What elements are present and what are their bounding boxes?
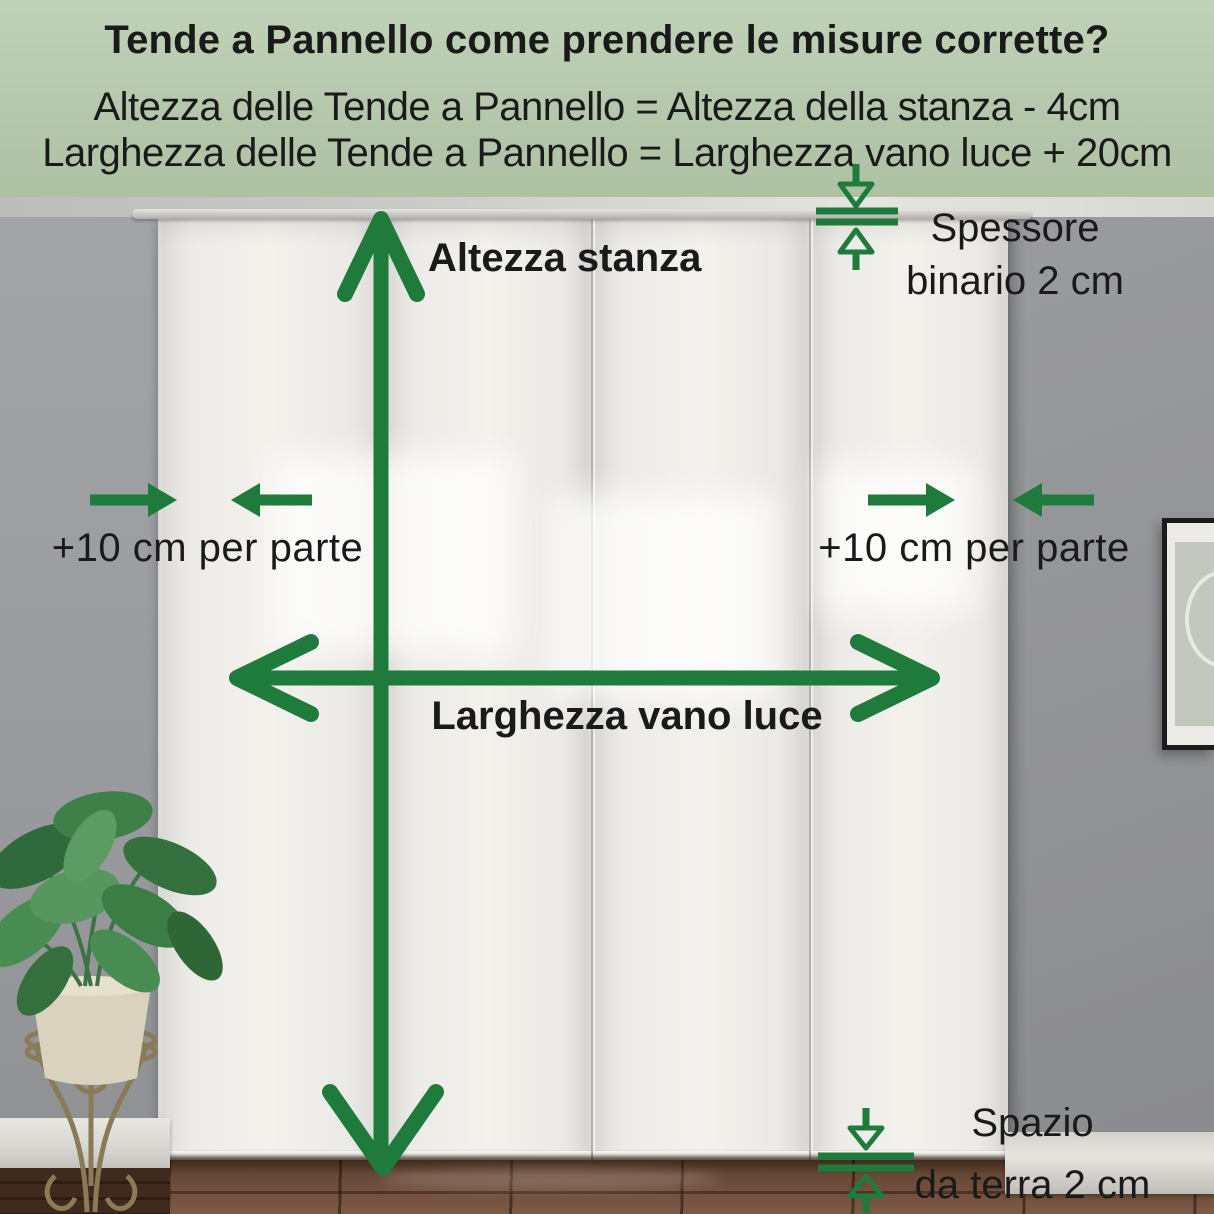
opening-width-label: Larghezza vano luce xyxy=(407,692,847,740)
left-extra-arrows-icon xyxy=(90,483,312,517)
rail-thickness-label: Spessore binario 2 cm xyxy=(890,202,1140,308)
floor-gap-label-line1: Spazio xyxy=(900,1092,1165,1154)
measurement-arrows xyxy=(0,0,1214,1214)
rail-thickness-label-line2: binario 2 cm xyxy=(890,255,1140,308)
extra-right-label: +10 cm per parte xyxy=(800,524,1148,572)
rail-thickness-label-line1: Spessore xyxy=(890,202,1140,255)
room-height-label: Altezza stanza xyxy=(428,234,701,282)
floor-gap-label-line2: da terra 2 cm xyxy=(900,1154,1165,1214)
right-extra-arrows-icon xyxy=(868,483,1094,517)
extra-left-label: +10 cm per parte xyxy=(35,524,380,572)
floor-gap-label: Spazio da terra 2 cm xyxy=(900,1092,1165,1214)
infographic-canvas: Altezza stanza Larghezza vano luce +10 c… xyxy=(0,0,1214,1214)
rail-thickness-marker-icon xyxy=(816,164,898,270)
